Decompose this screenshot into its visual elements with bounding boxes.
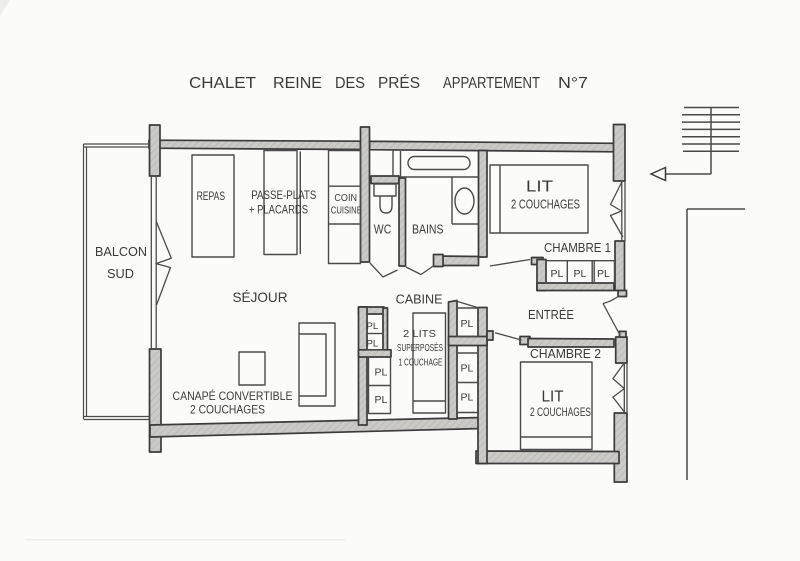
svg-text:REINE: REINE <box>273 75 322 92</box>
svg-text:DES: DES <box>335 75 365 92</box>
svg-text:SUD: SUD <box>107 267 134 281</box>
svg-text:PASSE-PLATS: PASSE-PLATS <box>251 188 316 202</box>
svg-text:WC: WC <box>374 222 392 237</box>
svg-text:PL: PL <box>461 392 474 404</box>
svg-text:PL: PL <box>367 321 379 332</box>
svg-text:PL: PL <box>574 268 587 280</box>
svg-text:COIN: COIN <box>334 192 357 204</box>
svg-text:2 COUCHAGES: 2 COUCHAGES <box>511 198 580 212</box>
svg-text:1 COUCHAGE: 1 COUCHAGE <box>399 357 443 369</box>
svg-text:PL: PL <box>375 367 388 379</box>
svg-text:PL: PL <box>367 339 379 350</box>
svg-text:2 COUCHAGES: 2 COUCHAGES <box>530 405 591 419</box>
svg-text:LIT: LIT <box>526 179 553 196</box>
svg-text:PRÉS: PRÉS <box>378 73 420 92</box>
svg-text:BALCON: BALCON <box>95 245 147 259</box>
svg-text:APPARTEMENT: APPARTEMENT <box>443 75 540 92</box>
svg-text:PL: PL <box>551 268 564 280</box>
svg-text:N°7: N°7 <box>558 75 588 92</box>
svg-text:SUPERPOSÉS: SUPERPOSÉS <box>397 341 443 354</box>
svg-text:CHALET: CHALET <box>189 75 256 92</box>
svg-text:ENTRÉE: ENTRÉE <box>528 307 574 322</box>
svg-text:CABINE: CABINE <box>396 293 443 307</box>
svg-text:PL: PL <box>461 363 474 375</box>
svg-text:REPAS: REPAS <box>197 189 226 203</box>
svg-text:CHAMBRE 2: CHAMBRE 2 <box>530 346 601 361</box>
svg-text:2 LITS: 2 LITS <box>403 328 436 340</box>
svg-text:CUISINE: CUISINE <box>331 205 362 217</box>
svg-text:CHAMBRE 1: CHAMBRE 1 <box>544 240 611 255</box>
svg-text:BAINS: BAINS <box>412 222 444 237</box>
svg-text:PL: PL <box>375 394 388 406</box>
svg-text:CANAPÉ CONVERTIBLE: CANAPÉ CONVERTIBLE <box>173 388 293 403</box>
svg-text:+ PLACARDS: + PLACARDS <box>249 203 308 217</box>
svg-text:2 COUCHAGES: 2 COUCHAGES <box>190 403 265 417</box>
svg-text:LIT: LIT <box>542 389 564 406</box>
svg-text:PL: PL <box>597 268 610 280</box>
svg-text:PL: PL <box>461 318 474 330</box>
svg-text:SÉJOUR: SÉJOUR <box>233 289 288 305</box>
